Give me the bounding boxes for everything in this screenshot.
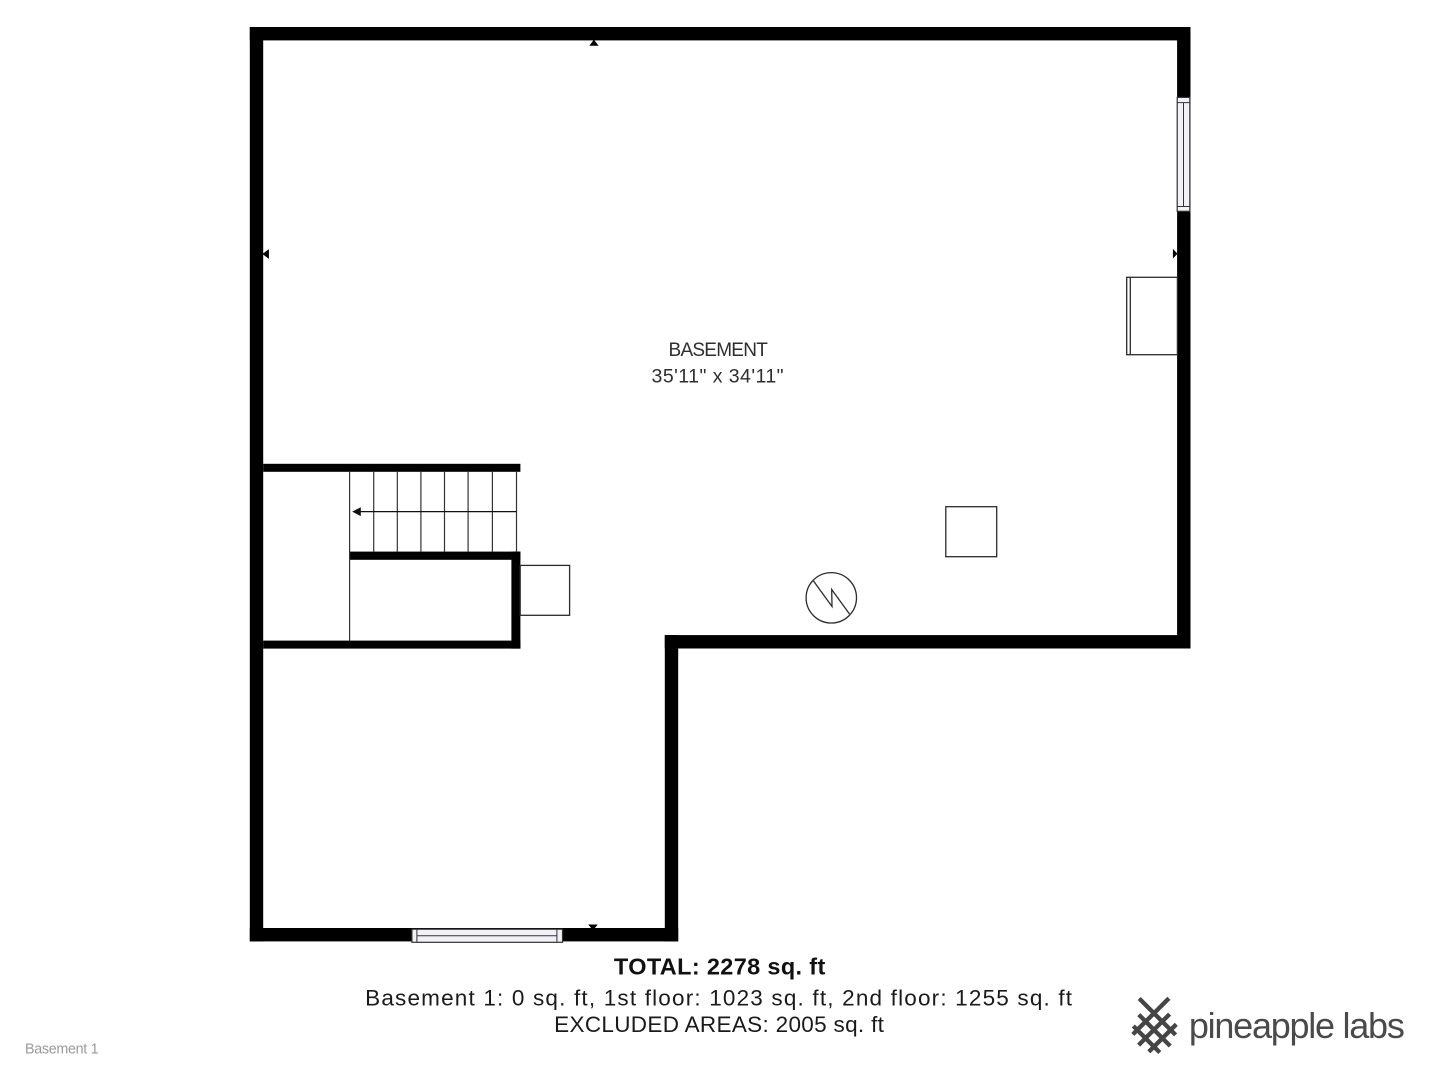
svg-text:35'11" x 34'11": 35'11" x 34'11" bbox=[652, 365, 785, 387]
svg-text:BASEMENT: BASEMENT bbox=[669, 340, 769, 361]
svg-text:Basement 1: Basement 1 bbox=[25, 1041, 99, 1057]
svg-text:TOTAL: 2278 sq. ft: TOTAL: 2278 sq. ft bbox=[614, 953, 826, 979]
svg-text:pineapple labs: pineapple labs bbox=[1189, 1005, 1404, 1046]
svg-text:Basement 1: 0 sq. ft, 1st floo: Basement 1: 0 sq. ft, 1st floor: 1023 sq… bbox=[365, 985, 1073, 1010]
svg-text:EXCLUDED AREAS: 2005 sq. ft: EXCLUDED AREAS: 2005 sq. ft bbox=[554, 1012, 884, 1037]
